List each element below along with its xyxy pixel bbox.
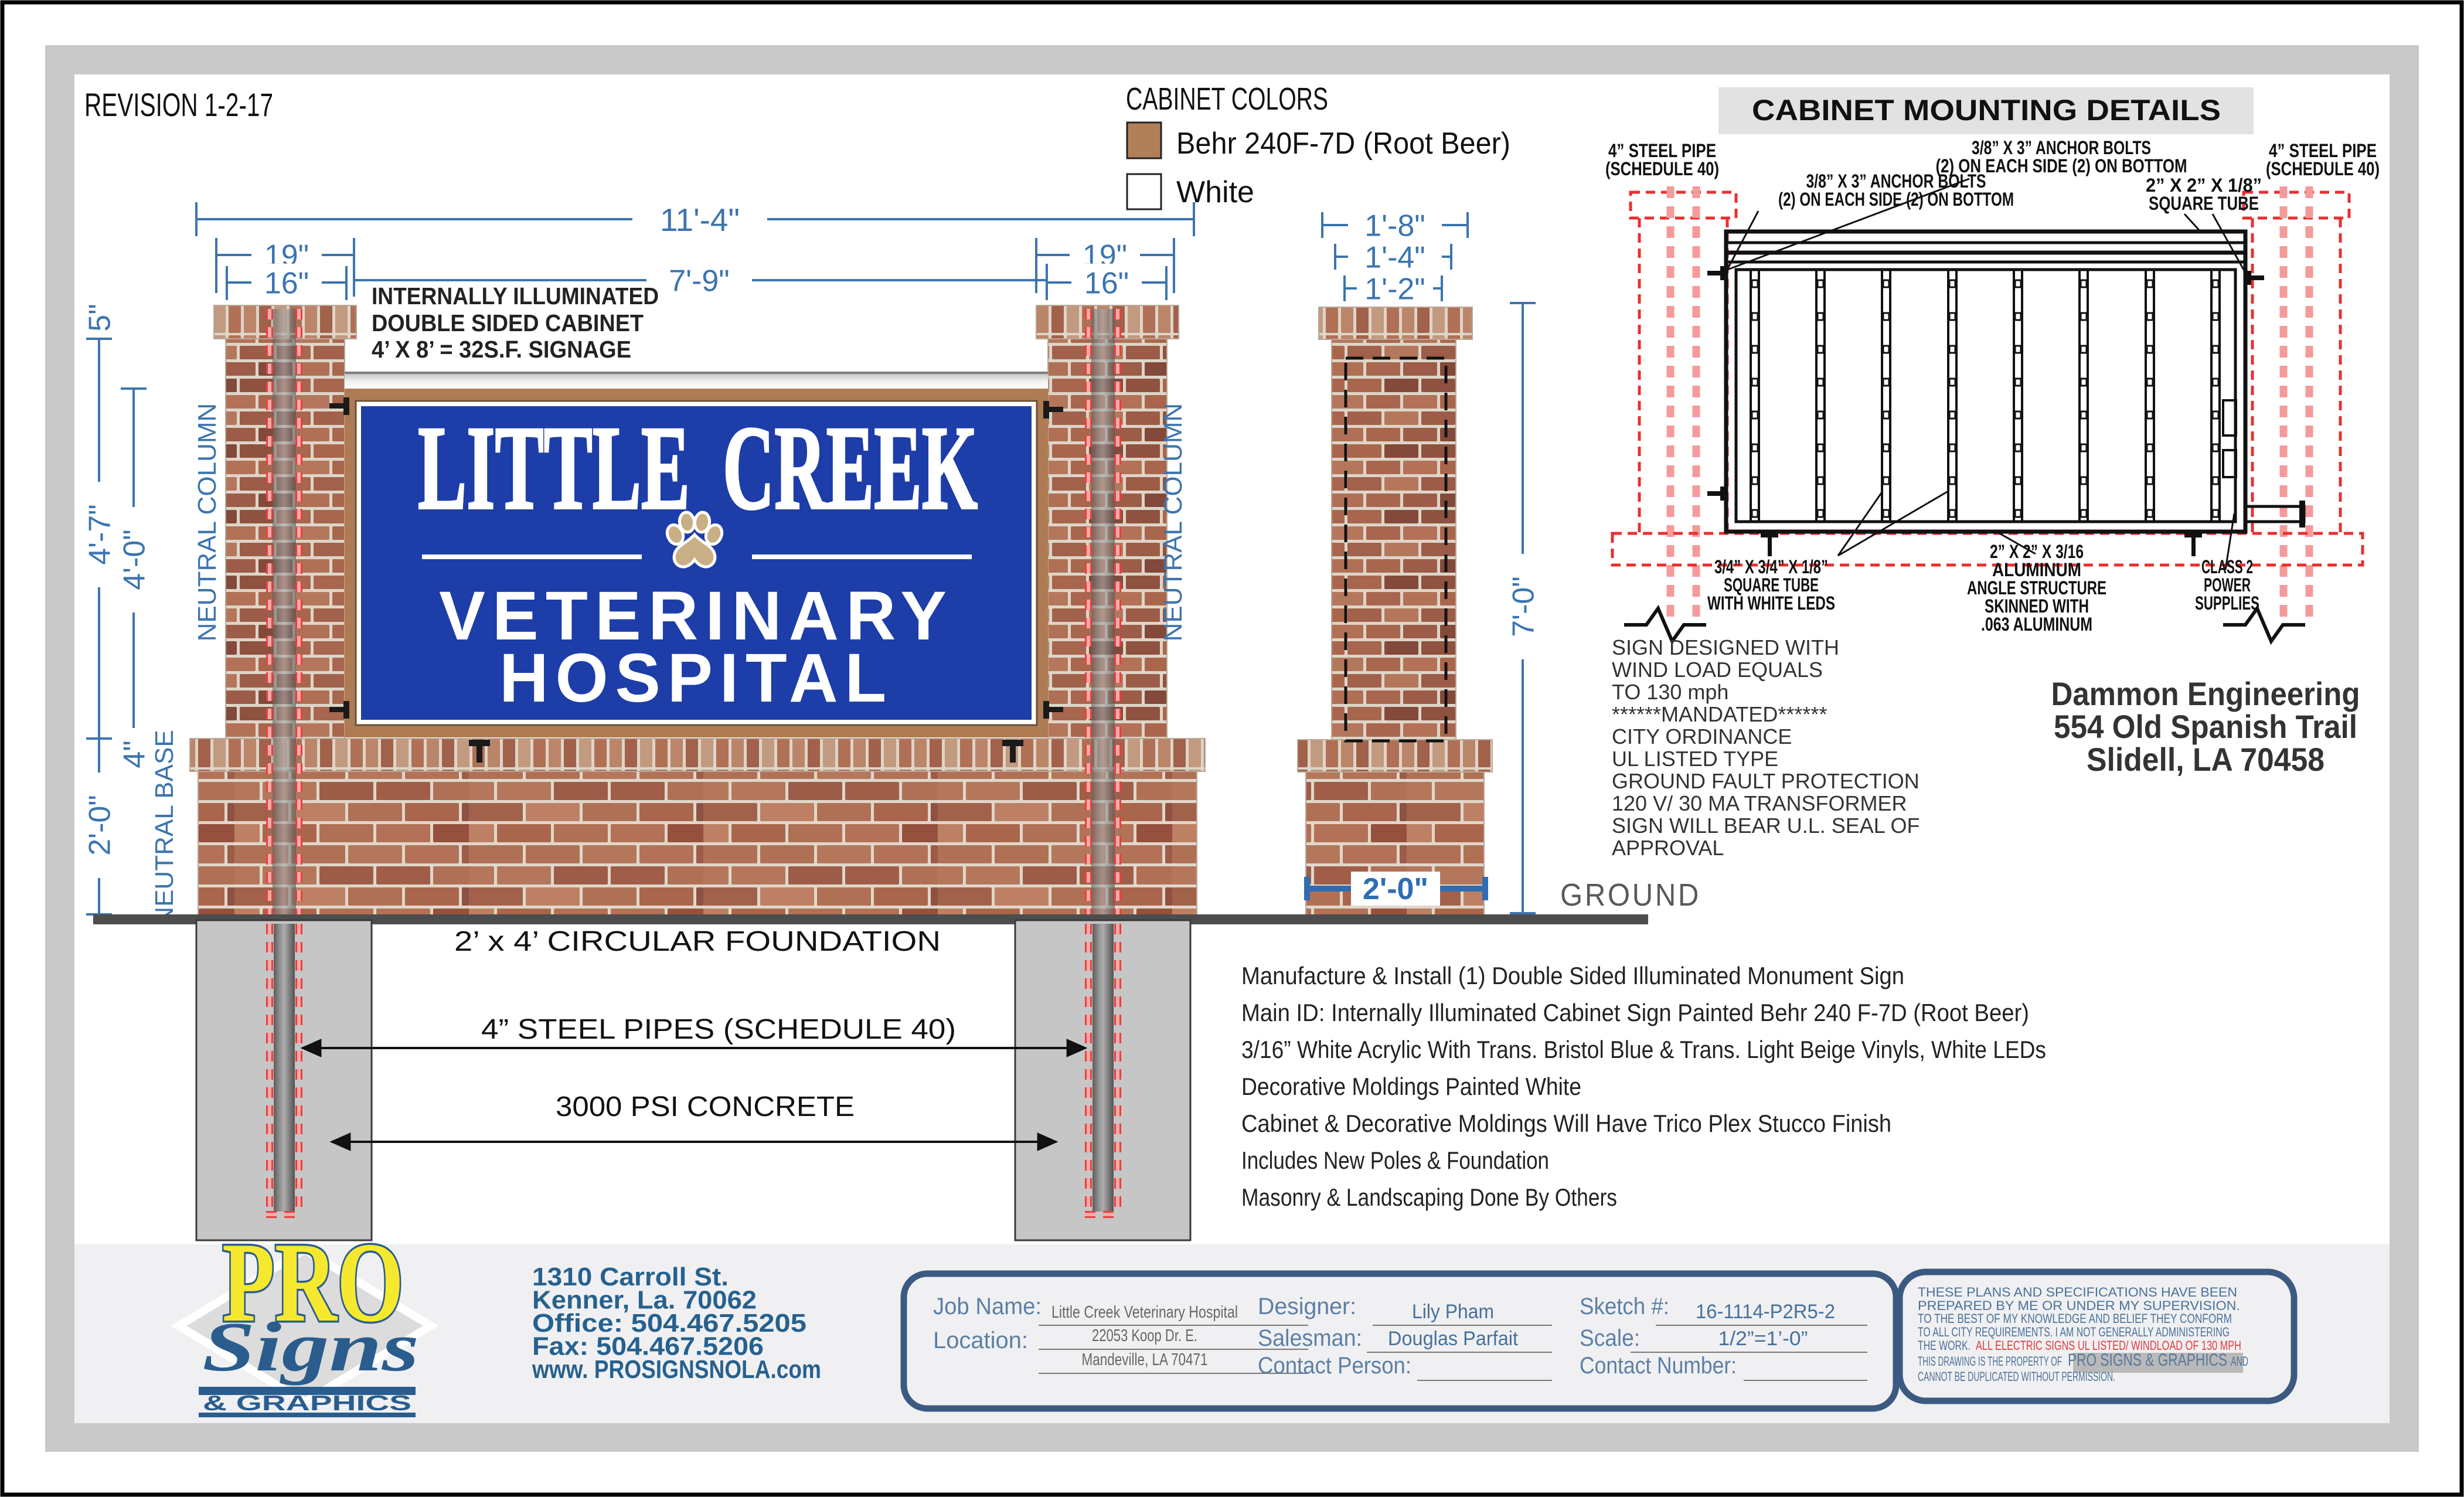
svg-text:Lily Pham: Lily Pham xyxy=(1412,1301,1494,1323)
svg-text:Cabinet & Decorative Moldings: Cabinet & Decorative Moldings Will Have … xyxy=(1241,1110,1891,1137)
svg-text:Main ID: Internally Illuminate: Main ID: Internally Illuminated Cabinet … xyxy=(1241,999,2029,1026)
svg-text:Slidell, LA 70458: Slidell, LA 70458 xyxy=(2087,741,2325,778)
svg-text:Signs: Signs xyxy=(202,1308,419,1386)
svg-text:Decorative Moldings Painted Wh: Decorative Moldings Painted White xyxy=(1241,1073,1581,1100)
svg-text:7'-0": 7'-0" xyxy=(1507,576,1541,637)
svg-text:5": 5" xyxy=(83,304,117,331)
svg-text:22053 Koop Dr. E.: 22053 Koop Dr. E. xyxy=(1092,1326,1197,1345)
svg-text:CREEK: CREEK xyxy=(723,402,978,535)
svg-text:Scale:: Scale: xyxy=(1580,1325,1640,1351)
svg-text:554 Old Spanish Trail: 554 Old Spanish Trail xyxy=(2054,708,2357,745)
svg-text:(SCHEDULE 40): (SCHEDULE 40) xyxy=(1605,158,1719,179)
svg-text:120 V/ 30 MA TRANSFORMER: 120 V/ 30 MA TRANSFORMER xyxy=(1612,791,1907,815)
svg-text:16": 16" xyxy=(1084,267,1129,301)
svg-text:CABINET MOUNTING DETAILS: CABINET MOUNTING DETAILS xyxy=(1752,94,2221,127)
svg-text:******MANDATED******: ******MANDATED****** xyxy=(1612,702,1827,726)
svg-text:Douglas Parfait: Douglas Parfait xyxy=(1388,1328,1519,1350)
svg-text:SQUARE TUBE: SQUARE TUBE xyxy=(2149,193,2259,214)
svg-text:GROUND: GROUND xyxy=(1560,877,1701,913)
svg-text:Contact Person:: Contact Person: xyxy=(1258,1353,1411,1379)
svg-text:THIS DRAWING IS THE PROPERTY O: THIS DRAWING IS THE PROPERTY OF xyxy=(1918,1354,2062,1369)
svg-text:TO 130 mph: TO 130 mph xyxy=(1612,680,1728,704)
svg-text:2’ x 4’ CIRCULAR FOUNDATION: 2’ x 4’ CIRCULAR FOUNDATION xyxy=(454,926,941,957)
svg-text:REVISION 1-2-17: REVISION 1-2-17 xyxy=(84,86,273,123)
svg-text:4’ X 8’ = 32S.F. SIGNAGE: 4’ X 8’ = 32S.F. SIGNAGE xyxy=(372,336,631,363)
svg-text:3/16” White Acrylic With Trans: 3/16” White Acrylic With Trans. Bristol … xyxy=(1241,1036,2046,1063)
svg-text:Little Creek Veterinary Hospit: Little Creek Veterinary Hospital xyxy=(1051,1303,1238,1322)
svg-text:2'-0": 2'-0" xyxy=(83,795,117,856)
svg-text:Dammon Engineering: Dammon Engineering xyxy=(2051,675,2360,712)
svg-text:Behr 240F-7D (Root Beer): Behr 240F-7D (Root Beer) xyxy=(1176,127,1510,161)
svg-text:AND: AND xyxy=(2231,1354,2248,1369)
svg-text:Location:: Location: xyxy=(933,1328,1028,1353)
svg-text:7'-9": 7'-9" xyxy=(669,264,730,298)
svg-text:Mandeville, LA 70471: Mandeville, LA 70471 xyxy=(1082,1350,1208,1369)
svg-text:Job Name:: Job Name: xyxy=(933,1294,1042,1319)
svg-text:TO ALL CITY REQUIREMENTS. I AM: TO ALL CITY REQUIREMENTS. I AM NOT GENER… xyxy=(1918,1325,2230,1339)
svg-text:3000 PSI CONCRETE: 3000 PSI CONCRETE xyxy=(556,1091,855,1122)
svg-text:16": 16" xyxy=(264,267,309,301)
svg-text:LITTLE: LITTLE xyxy=(418,402,690,535)
svg-text:(SCHEDULE 40): (SCHEDULE 40) xyxy=(2266,158,2380,179)
svg-text:SIGN WILL BEAR U.L. SEAL OF: SIGN WILL BEAR U.L. SEAL OF xyxy=(1612,814,1920,838)
svg-text:THE WORK.: THE WORK. xyxy=(1918,1338,1970,1353)
svg-text:WIND LOAD EQUALS: WIND LOAD EQUALS xyxy=(1612,658,1823,682)
svg-text:4": 4" xyxy=(118,740,152,768)
svg-text:NEUTRAL COLUMN: NEUTRAL COLUMN xyxy=(193,403,222,642)
svg-text:11'-4": 11'-4" xyxy=(660,202,740,238)
svg-text:& GRAPHICS: & GRAPHICS xyxy=(203,1391,411,1415)
svg-text:4'-0": 4'-0" xyxy=(118,529,152,590)
svg-text:.063 ALUMINUM: .063 ALUMINUM xyxy=(1981,614,2092,635)
svg-text:1/2”=1’-0”: 1/2”=1’-0” xyxy=(1718,1328,1808,1350)
svg-text:TO THE BEST OF MY KNOWLEDGE AN: TO THE BEST OF MY KNOWLEDGE AND BELIEF T… xyxy=(1918,1311,2232,1326)
svg-text:White: White xyxy=(1176,175,1254,209)
svg-text:DOUBLE SIDED CABINET: DOUBLE SIDED CABINET xyxy=(372,309,644,336)
svg-text:WITH WHITE LEDS: WITH WHITE LEDS xyxy=(1707,593,1835,614)
svg-text:CANNOT BE DUPLICATED WITHOUT P: CANNOT BE DUPLICATED WITHOUT PERMISSION. xyxy=(1918,1369,2115,1384)
svg-text:CABINET COLORS: CABINET COLORS xyxy=(1126,81,1328,117)
svg-text:Includes New Poles & Foundatio: Includes New Poles & Foundation xyxy=(1241,1146,1549,1174)
svg-text:www. PROSIGNSNOLA.com: www. PROSIGNSNOLA.com xyxy=(532,1355,821,1384)
svg-text:PRO SIGNS & GRAPHICS: PRO SIGNS & GRAPHICS xyxy=(2068,1350,2227,1370)
svg-text:APPROVAL: APPROVAL xyxy=(1612,836,1724,860)
svg-text:16-1114-P2R5-2: 16-1114-P2R5-2 xyxy=(1696,1301,1835,1323)
svg-text:Masonry & Landscaping Done By: Masonry & Landscaping Done By Others xyxy=(1241,1183,1617,1211)
svg-text:UL LISTED TYPE: UL LISTED TYPE xyxy=(1612,747,1778,771)
svg-text:HOSPITAL: HOSPITAL xyxy=(499,639,893,717)
svg-text:Contact Number:: Contact Number: xyxy=(1580,1353,1737,1379)
svg-text:Salesman:: Salesman: xyxy=(1258,1325,1362,1351)
svg-text:4'-7": 4'-7" xyxy=(83,504,117,565)
svg-text:GROUND FAULT PROTECTION: GROUND FAULT PROTECTION xyxy=(1612,769,1920,793)
svg-text:Designer:: Designer: xyxy=(1258,1294,1356,1319)
svg-text:INTERNALLY ILLUMINATED: INTERNALLY ILLUMINATED xyxy=(372,283,659,309)
svg-text:NEUTRAL COLUMN: NEUTRAL COLUMN xyxy=(1159,403,1187,642)
svg-text:NEUTRAL BASE: NEUTRAL BASE xyxy=(150,730,179,925)
svg-text:(2) ON EACH SIDE (2) ON BOTTOM: (2) ON EACH SIDE (2) ON BOTTOM xyxy=(1778,189,2014,210)
svg-text:Manufacture & Install (1) Doub: Manufacture & Install (1) Double Sided I… xyxy=(1241,962,1904,989)
svg-text:1'-2": 1'-2" xyxy=(1364,273,1425,307)
svg-text:SIGN DESIGNED WITH: SIGN DESIGNED WITH xyxy=(1612,635,1839,659)
svg-text:4” STEEL PIPES (SCHEDULE 40): 4” STEEL PIPES (SCHEDULE 40) xyxy=(481,1014,956,1045)
svg-text:CITY ORDINANCE: CITY ORDINANCE xyxy=(1612,724,1792,748)
svg-text:THESE PLANS AND SPECIFICATIONS: THESE PLANS AND SPECIFICATIONS HAVE BEEN xyxy=(1918,1285,2237,1299)
svg-text:SUPPLIES: SUPPLIES xyxy=(2195,593,2259,614)
svg-text:Sketch #:: Sketch #: xyxy=(1580,1294,1669,1319)
svg-text:2'-0": 2'-0" xyxy=(1363,872,1428,906)
